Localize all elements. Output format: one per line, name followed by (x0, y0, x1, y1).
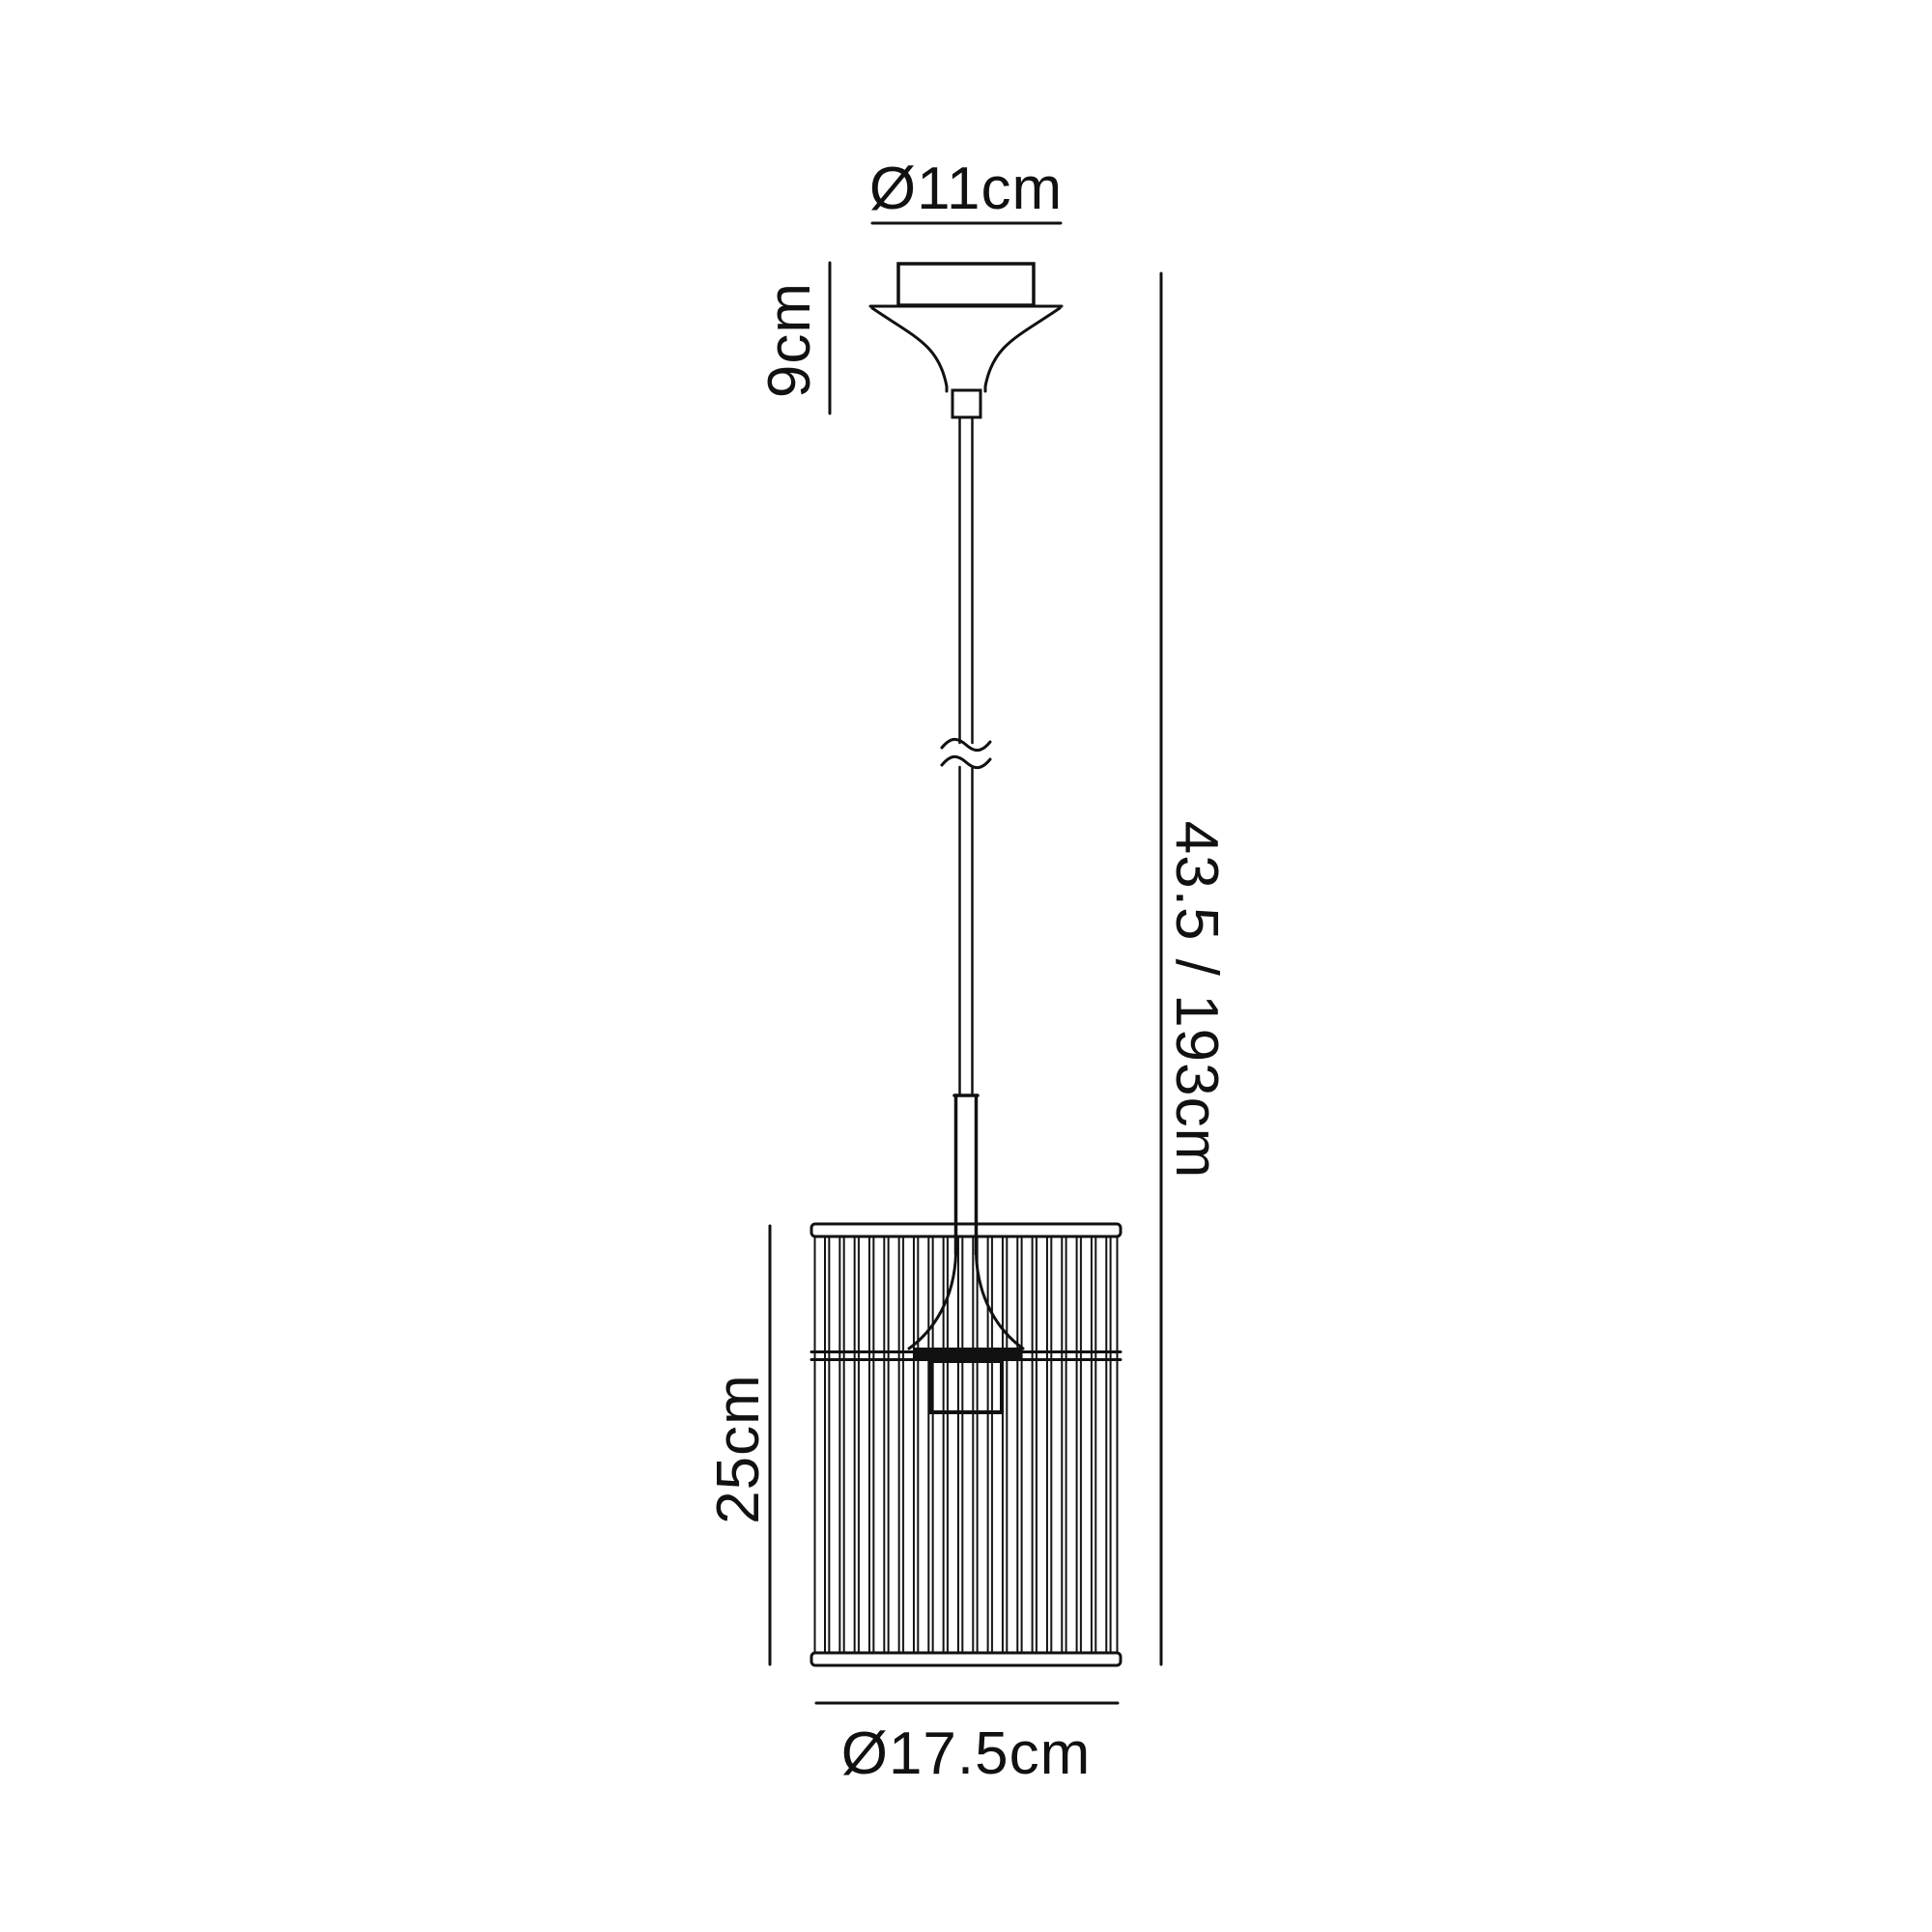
label-shade-diameter: Ø17.5cm (841, 1720, 1092, 1787)
canopy-bell-left (872, 308, 947, 391)
diagram-canvas: Ø11cm 9cm 43.5 / 193cm 25cm Ø17.5cm (0, 0, 1932, 1932)
rod-connector (952, 390, 980, 417)
shade-vertical-bars (824, 1236, 1113, 1653)
cable-break-wave-bottom (942, 756, 990, 767)
shade-top-rim (811, 1224, 1121, 1236)
label-canopy-height: 9cm (756, 282, 823, 398)
cable-break-wave-top (942, 739, 990, 750)
label-overall-height: 43.5 / 193cm (1163, 821, 1230, 1179)
label-shade-height: 25cm (705, 1374, 772, 1524)
pendant-light-dimension-diagram: Ø11cm 9cm 43.5 / 193cm 25cm Ø17.5cm (0, 0, 1932, 1932)
ceiling-plate (898, 264, 1034, 305)
shade-bottom-rim (811, 1653, 1121, 1665)
linework-group (770, 223, 1161, 1703)
label-canopy-diameter: Ø11cm (869, 156, 1063, 222)
canopy-bell-right (985, 308, 1060, 391)
inner-mount-plate (913, 1348, 1021, 1361)
